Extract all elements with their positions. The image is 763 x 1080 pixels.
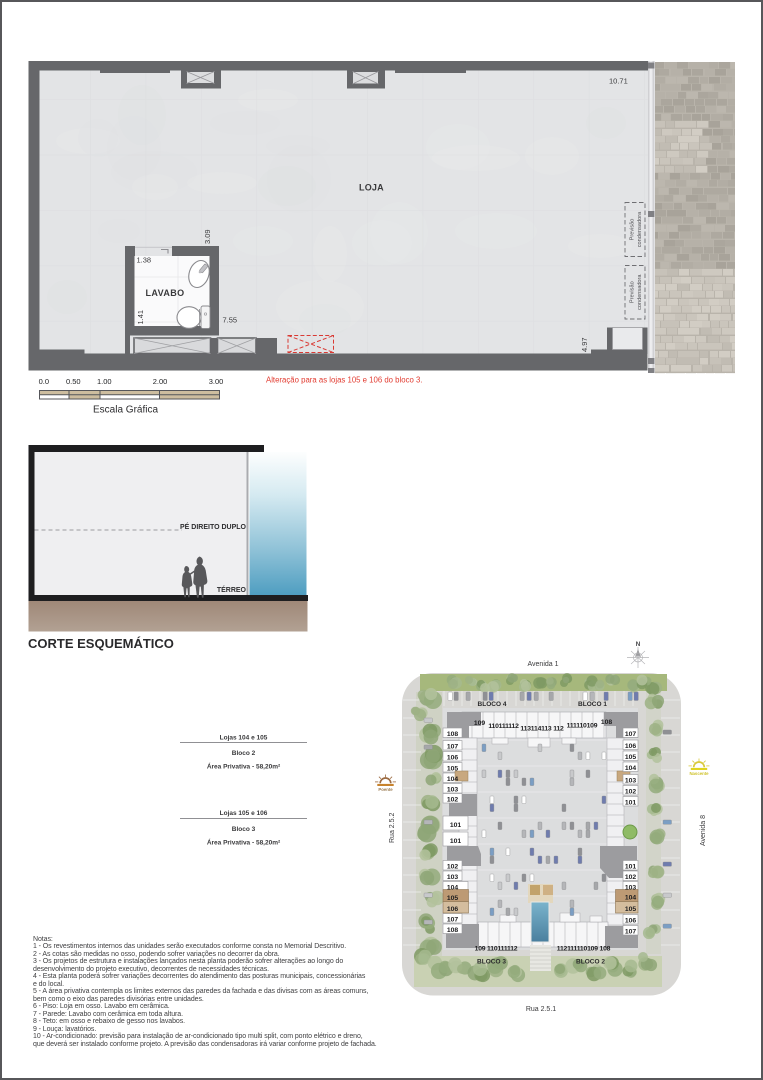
- svg-text:Alteração para as lojas 105 e: Alteração para as lojas 105 e 106 do blo…: [266, 376, 422, 385]
- svg-text:1.00: 1.00: [97, 377, 112, 386]
- svg-text:108: 108: [447, 927, 459, 934]
- svg-text:106: 106: [447, 906, 459, 913]
- svg-text:102: 102: [625, 789, 637, 796]
- svg-text:0.0: 0.0: [39, 377, 49, 386]
- svg-text:104: 104: [447, 776, 459, 783]
- svg-text:104: 104: [625, 765, 637, 772]
- svg-text:107: 107: [447, 917, 459, 924]
- svg-text:101: 101: [625, 800, 637, 807]
- svg-text:3.09: 3.09: [203, 229, 212, 244]
- svg-text:1.38: 1.38: [137, 256, 152, 265]
- svg-text:102: 102: [447, 797, 459, 804]
- svg-text:0.50: 0.50: [66, 377, 81, 386]
- svg-text:10.71: 10.71: [609, 77, 628, 86]
- svg-text:BLOCO 1: BLOCO 1: [578, 701, 607, 708]
- svg-text:105: 105: [447, 895, 459, 902]
- svg-text:104: 104: [447, 885, 459, 892]
- svg-text:105: 105: [447, 766, 459, 773]
- svg-text:107: 107: [447, 744, 459, 751]
- svg-text:condensadora: condensadora: [637, 211, 643, 247]
- svg-text:109: 109: [474, 720, 486, 727]
- svg-text:105: 105: [625, 906, 637, 913]
- svg-text:LAVABO: LAVABO: [146, 288, 185, 298]
- svg-text:4.97: 4.97: [580, 337, 589, 352]
- svg-text:Área Privativa - 58,20m²: Área Privativa - 58,20m²: [207, 762, 281, 771]
- svg-text:107: 107: [625, 731, 637, 738]
- svg-text:104: 104: [625, 895, 637, 902]
- svg-text:102: 102: [625, 874, 637, 881]
- svg-text:Avenida 8: Avenida 8: [700, 815, 707, 846]
- svg-text:7.55: 7.55: [223, 316, 238, 325]
- svg-text:Previsão: Previsão: [630, 219, 636, 241]
- svg-text:108: 108: [447, 731, 459, 738]
- svg-text:103: 103: [447, 874, 459, 881]
- svg-text:105: 105: [625, 754, 637, 761]
- svg-text:PÉ DIREITO DUPLO: PÉ DIREITO DUPLO: [180, 522, 247, 531]
- svg-text:103: 103: [625, 885, 637, 892]
- svg-text:2.00: 2.00: [153, 377, 168, 386]
- svg-text:N: N: [636, 641, 641, 648]
- svg-text:113114113 112: 113114113 112: [520, 726, 564, 733]
- svg-text:107: 107: [625, 929, 637, 936]
- svg-text:106: 106: [625, 743, 637, 750]
- svg-text:BLOCO 4: BLOCO 4: [478, 701, 507, 708]
- svg-text:Bloco 2: Bloco 2: [232, 750, 256, 757]
- svg-text:101: 101: [450, 838, 462, 845]
- svg-text:101: 101: [450, 822, 462, 829]
- svg-text:110111112: 110111112: [488, 723, 519, 730]
- svg-text:Bloco 3: Bloco 3: [232, 826, 256, 833]
- svg-text:106: 106: [447, 755, 459, 762]
- svg-text:101: 101: [625, 864, 637, 871]
- svg-text:Lojas 105 e 106: Lojas 105 e 106: [220, 810, 268, 817]
- svg-text:Lojas 104 e 105: Lojas 104 e 105: [220, 734, 268, 741]
- svg-text:Poente: Poente: [378, 787, 393, 792]
- svg-text:103: 103: [625, 778, 637, 785]
- svg-text:103: 103: [447, 787, 459, 794]
- svg-text:TÉRREO: TÉRREO: [217, 585, 247, 594]
- svg-text:Escala Gráfica: Escala Gráfica: [93, 405, 158, 416]
- svg-text:1.41: 1.41: [136, 310, 145, 325]
- svg-text:111110109: 111110109: [567, 723, 598, 730]
- svg-text:108: 108: [601, 719, 613, 726]
- svg-text:102: 102: [447, 864, 459, 871]
- svg-text:condensadora: condensadora: [637, 274, 643, 310]
- svg-text:Nascente: Nascente: [689, 771, 709, 776]
- svg-text:Previsão: Previsão: [630, 281, 636, 303]
- svg-text:Área Privativa - 58,20m²: Área Privativa - 58,20m²: [207, 838, 281, 847]
- svg-text:3.00: 3.00: [209, 377, 224, 386]
- svg-text:Rua 2.5.2: Rua 2.5.2: [389, 813, 396, 843]
- svg-text:LOJA: LOJA: [359, 183, 384, 193]
- svg-text:CORTE ESQUEMÁTICO: CORTE ESQUEMÁTICO: [28, 636, 174, 651]
- svg-text:Avenida 1: Avenida 1: [527, 661, 558, 668]
- svg-text:106: 106: [625, 918, 637, 925]
